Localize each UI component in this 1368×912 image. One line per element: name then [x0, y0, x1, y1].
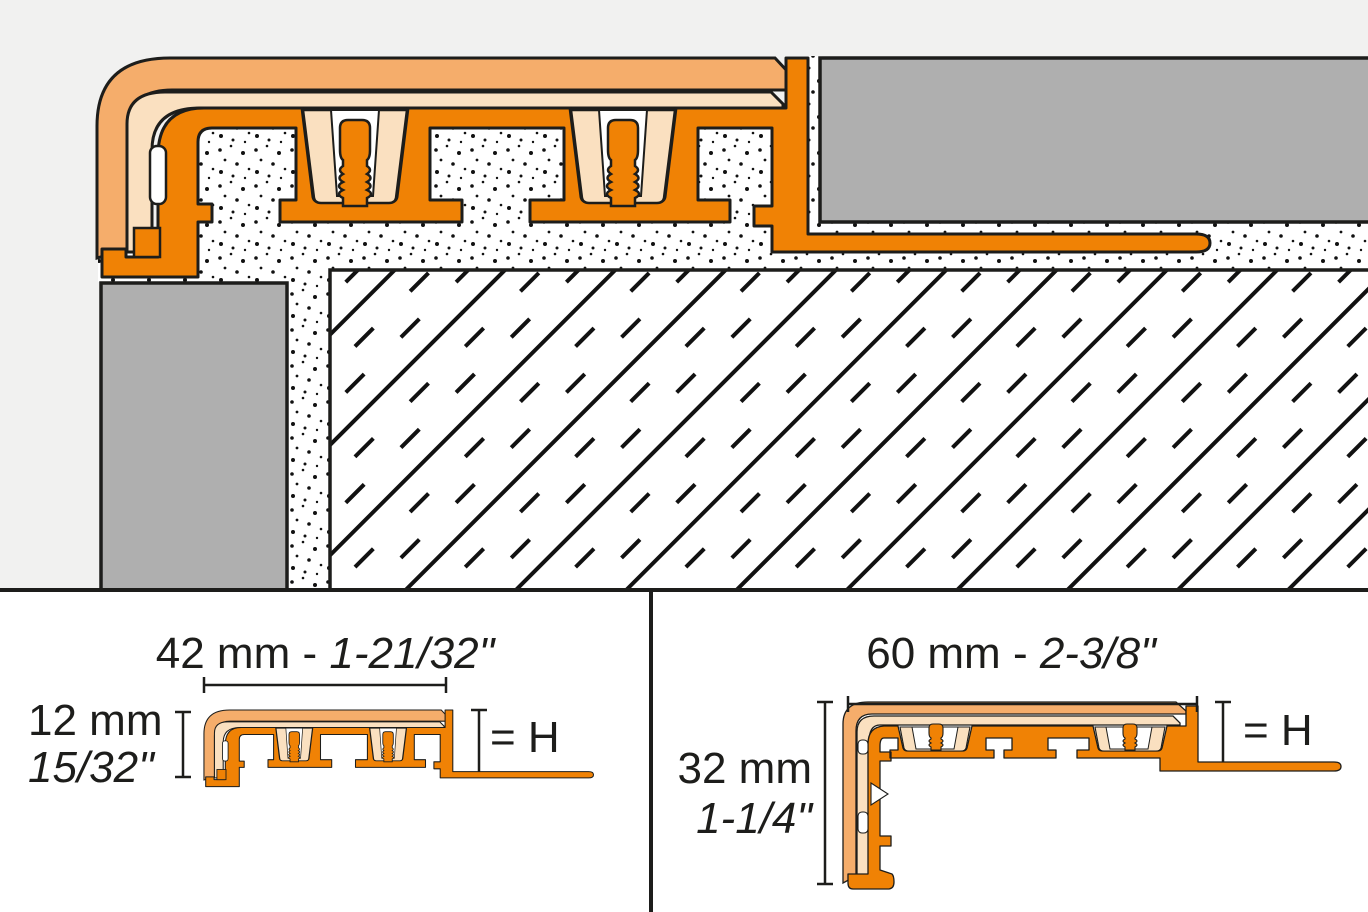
width-dimension-label: 42 mm - 1-21/32" [156, 629, 497, 678]
panel-divider-horizontal [0, 588, 1368, 592]
technical-drawing-page: 42 mm - 1-21/32" 12 mm 15/32" = H [0, 0, 1368, 912]
profile-height-label: = H [490, 713, 560, 762]
height-dimension-label-metric: 12 mm [28, 696, 162, 745]
height-dimension-label-imperial: 1-1/4" [696, 794, 814, 843]
substrate-hatch [330, 270, 1368, 592]
tile-left [101, 283, 287, 590]
height-dimension-label-metric: 32 mm [678, 744, 812, 793]
technical-drawing: 42 mm - 1-21/32" 12 mm 15/32" = H [0, 0, 1368, 912]
installation-cross-section [0, 0, 1368, 592]
width-dimension-label: 60 mm - 2-3/8" [866, 629, 1158, 678]
tile-right [820, 58, 1368, 222]
anchor-stud-icon [1123, 724, 1137, 750]
anchor-stud-icon [929, 724, 943, 750]
relief-notch [858, 812, 868, 833]
profile-height-label: = H [1243, 706, 1313, 755]
panel-divider-vertical [649, 588, 653, 912]
relief-notch [858, 740, 868, 754]
height-dimension-label-imperial: 15/32" [28, 743, 156, 792]
